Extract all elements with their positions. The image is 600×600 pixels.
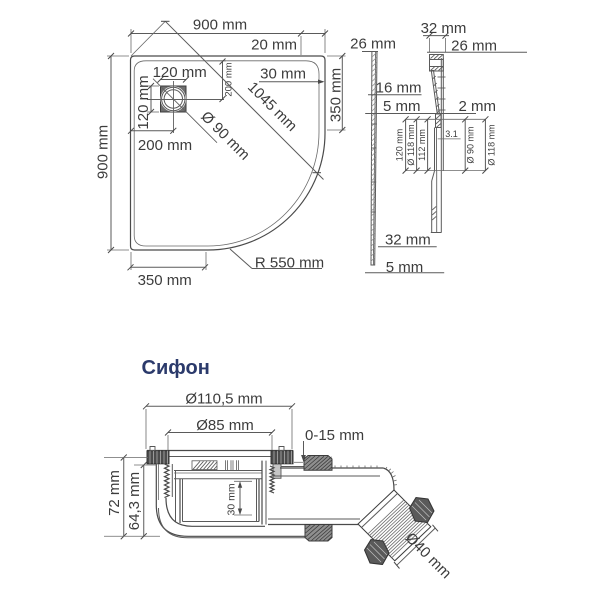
svg-text:2 mm: 2 mm [459, 98, 497, 115]
svg-text:350 mm: 350 mm [138, 272, 192, 289]
svg-text:200 mm: 200 mm [138, 137, 192, 154]
svg-text:32 mm: 32 mm [385, 232, 431, 249]
svg-text:72 mm: 72 mm [106, 470, 123, 516]
svg-text:1045 mm: 1045 mm [244, 79, 300, 135]
svg-text:R 550 mm: R 550 mm [255, 255, 324, 272]
svg-text:Ø 118 mm: Ø 118 mm [487, 124, 497, 165]
svg-text:120 mm: 120 mm [135, 75, 152, 129]
svg-text:Ø 90 mm: Ø 90 mm [466, 126, 476, 163]
svg-text:900 mm: 900 mm [95, 125, 112, 179]
svg-text:0-15 mm: 0-15 mm [305, 427, 364, 444]
svg-text:32 mm: 32 mm [421, 20, 467, 37]
svg-text:Ø40 mm: Ø40 mm [402, 529, 455, 582]
svg-text:112 mm: 112 mm [417, 129, 427, 161]
svg-text:120 mm: 120 mm [153, 64, 207, 81]
svg-text:5 mm: 5 mm [386, 259, 424, 276]
svg-text:200 mm: 200 mm [224, 62, 235, 96]
svg-text:30 mm: 30 mm [226, 483, 238, 515]
svg-text:64,3 mm: 64,3 mm [126, 472, 143, 530]
svg-text:16 mm: 16 mm [376, 79, 422, 96]
svg-text:120 mm: 120 mm [395, 129, 405, 162]
svg-text:Ø 90 mm: Ø 90 mm [197, 108, 253, 164]
svg-text:20 mm: 20 mm [251, 37, 297, 54]
svg-text:5 mm: 5 mm [383, 98, 421, 115]
svg-text:3.1: 3.1 [445, 129, 458, 139]
svg-text:Ø85 mm: Ø85 mm [196, 417, 254, 434]
svg-text:26 mm: 26 mm [350, 35, 396, 52]
svg-text:900 mm: 900 mm [193, 16, 247, 33]
svg-text:350 mm: 350 mm [328, 68, 345, 122]
svg-text:30 mm: 30 mm [260, 66, 306, 83]
svg-text:Сифон: Сифон [142, 357, 210, 379]
svg-text:26 mm: 26 mm [451, 37, 497, 54]
svg-text:Ø 118 mm: Ø 118 mm [406, 124, 416, 165]
svg-text:Ø110,5 mm: Ø110,5 mm [185, 391, 262, 408]
